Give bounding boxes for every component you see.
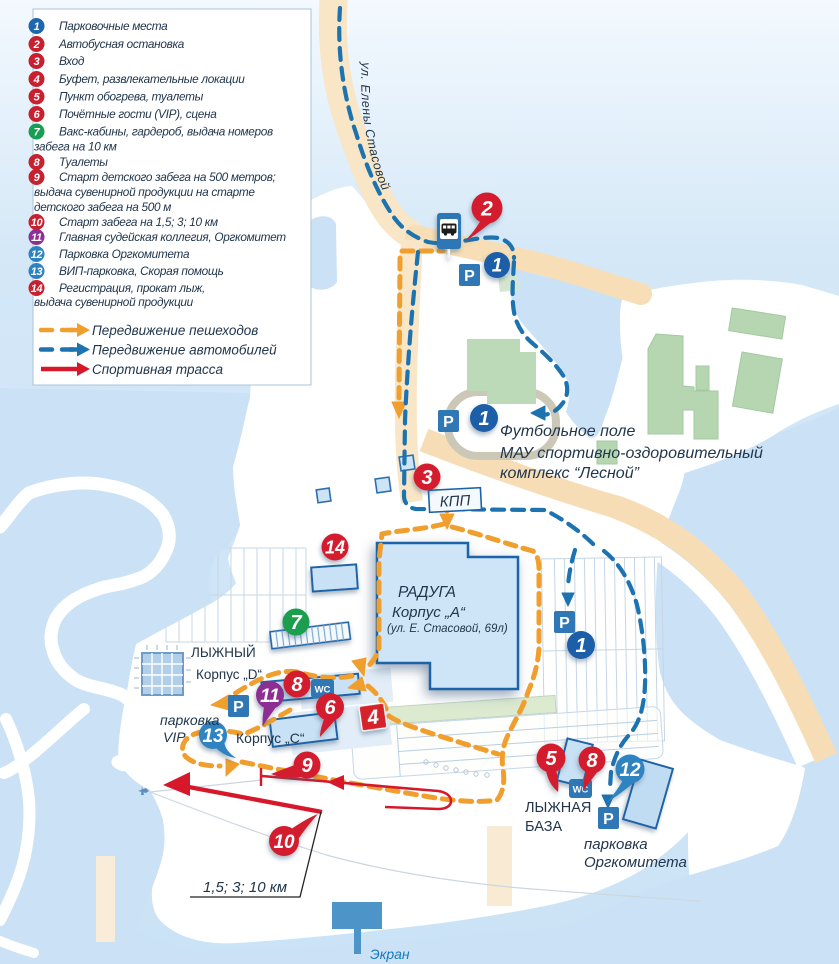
- svg-text:14: 14: [325, 538, 345, 558]
- svg-text:Корпус „А“: Корпус „А“: [392, 604, 466, 621]
- svg-text:Спортивная трасса: Спортивная трасса: [92, 362, 224, 377]
- svg-text:Почётные гости (VIP), сцена: Почётные гости (VIP), сцена: [59, 107, 217, 121]
- svg-text:13: 13: [202, 726, 224, 747]
- svg-text:7: 7: [290, 612, 302, 634]
- svg-text:1: 1: [492, 256, 503, 277]
- svg-text:ЛЫЖНАЯ: ЛЫЖНАЯ: [525, 800, 591, 816]
- svg-text:12: 12: [31, 249, 43, 261]
- svg-text:P: P: [464, 268, 475, 285]
- svg-text:11: 11: [31, 232, 42, 244]
- svg-text:Главная судейская коллегия, Ор: Главная судейская коллегия, Оргкомитет: [59, 230, 286, 244]
- svg-text:1: 1: [478, 408, 489, 430]
- svg-text:Буфет, развлекательные локации: Буфет, развлекательные локации: [59, 72, 245, 86]
- svg-text:P: P: [603, 811, 614, 828]
- svg-text:10: 10: [273, 832, 295, 853]
- svg-text:парковка: парковка: [584, 836, 648, 853]
- svg-text:Передвижение пешеходов: Передвижение пешеходов: [92, 323, 258, 338]
- svg-text:5: 5: [545, 748, 557, 770]
- svg-text:выдача сувенирной продукции: выдача сувенирной продукции: [34, 295, 194, 309]
- svg-text:1: 1: [34, 21, 40, 33]
- svg-text:6: 6: [324, 697, 336, 719]
- svg-text:3: 3: [421, 467, 432, 489]
- svg-text:Автобусная остановка: Автобусная остановка: [58, 37, 185, 51]
- svg-text:МАУ спортивно-оздоровительный: МАУ спортивно-оздоровительный: [500, 445, 763, 462]
- svg-text:Футбольное поле: Футбольное поле: [500, 423, 635, 440]
- svg-text:Парковка Оргкомитета: Парковка Оргкомитета: [59, 247, 190, 261]
- svg-text:забега на 10 км: забега на 10 км: [33, 140, 117, 154]
- svg-text:Вакс-кабины, гардероб, выдача: Вакс-кабины, гардероб, выдача номеров: [59, 125, 273, 139]
- svg-text:Парковочные места: Парковочные места: [59, 19, 168, 33]
- svg-text:комплекс “Лесной”: комплекс “Лесной”: [500, 465, 640, 482]
- svg-text:выдача сувенирной продукции на: выдача сувенирной продукции на старте: [34, 185, 255, 199]
- svg-text:8: 8: [291, 674, 303, 696]
- svg-text:Старт забега на 1,5; 3; 10 км: Старт забега на 1,5; 3; 10 км: [59, 215, 218, 229]
- svg-text:(ул. Е. Стасовой, 69л): (ул. Е. Стасовой, 69л): [387, 623, 508, 635]
- svg-text:Пункт обогрева, туалеты: Пункт обогрева, туалеты: [59, 90, 204, 104]
- svg-text:3: 3: [34, 56, 40, 68]
- svg-text:12: 12: [619, 760, 641, 781]
- svg-text:Вход: Вход: [59, 54, 85, 68]
- svg-text:VIP: VIP: [163, 729, 186, 745]
- svg-text:ЛЫЖНЫЙ: ЛЫЖНЫЙ: [191, 645, 256, 660]
- svg-text:1,5; 3; 10 км: 1,5; 3; 10 км: [203, 879, 287, 896]
- svg-text:Регистрация, прокат лыж,: Регистрация, прокат лыж,: [59, 281, 205, 295]
- svg-text:9: 9: [301, 755, 313, 777]
- svg-text:P: P: [559, 615, 570, 632]
- svg-text:P: P: [233, 699, 244, 716]
- svg-text:4: 4: [33, 74, 40, 86]
- svg-text:Корпус „D“: Корпус „D“: [196, 667, 262, 682]
- svg-text:2: 2: [33, 39, 40, 51]
- svg-text:КПП: КПП: [439, 492, 471, 511]
- svg-text:РАДУГА: РАДУГА: [398, 584, 456, 601]
- svg-text:14: 14: [31, 283, 43, 295]
- svg-text:Туалеты: Туалеты: [59, 155, 108, 169]
- svg-text:10: 10: [31, 217, 44, 229]
- svg-text:ВИП-парковка, Скорая помощь: ВИП-парковка, Скорая помощь: [59, 264, 224, 278]
- svg-text:Оргкомитета: Оргкомитета: [584, 854, 687, 871]
- svg-text:БАЗА: БАЗА: [525, 819, 562, 835]
- svg-text:1: 1: [575, 635, 586, 657]
- svg-text:8: 8: [586, 750, 598, 772]
- svg-text:2: 2: [480, 198, 493, 221]
- svg-text:Передвижение автомобилей: Передвижение автомобилей: [92, 343, 277, 358]
- svg-text:Экран: Экран: [370, 946, 410, 962]
- svg-text:P: P: [443, 414, 454, 431]
- svg-text:детского забега на 500 м: детского забега на 500 м: [34, 200, 171, 214]
- svg-text:парковка: парковка: [160, 712, 220, 728]
- svg-text:13: 13: [31, 266, 43, 278]
- svg-text:11: 11: [260, 686, 280, 707]
- svg-text:Старт детского забега на 500 м: Старт детского забега на 500 метров;: [59, 170, 276, 184]
- svg-text:Корпус „С“: Корпус „С“: [236, 730, 305, 746]
